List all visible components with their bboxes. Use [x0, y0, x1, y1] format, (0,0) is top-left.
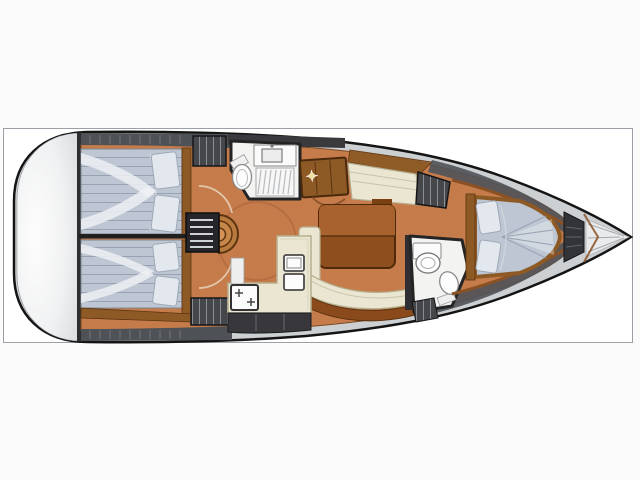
compass-star-marker: ✦ [305, 166, 320, 186]
wardrobe-locker [193, 136, 226, 166]
stove-top [231, 285, 258, 310]
stair-step [219, 228, 226, 241]
toilet [233, 165, 252, 190]
transom-platform [17, 133, 79, 341]
aft-cabin-bulkhead [79, 234, 192, 239]
pillow [151, 152, 180, 190]
pillow [152, 276, 179, 307]
fridge [231, 258, 244, 284]
galley-cabinets [228, 313, 311, 333]
washbasin [416, 253, 440, 273]
pillow [476, 200, 502, 234]
pillow [151, 195, 180, 233]
galley-oven [284, 274, 304, 290]
pillow [152, 242, 179, 273]
chart-table: ✦ [300, 157, 348, 197]
head-locker [412, 298, 438, 322]
sink [262, 149, 282, 162]
faucet [270, 144, 273, 147]
pillow [476, 240, 502, 274]
yacht-floor-plan-image: ✦ [0, 0, 640, 480]
wardrobe-locker [191, 298, 232, 325]
saloon-table-leaf [319, 205, 395, 236]
berth-head-trim [466, 194, 475, 280]
floor-plan-canvas: ✦ [0, 0, 640, 480]
